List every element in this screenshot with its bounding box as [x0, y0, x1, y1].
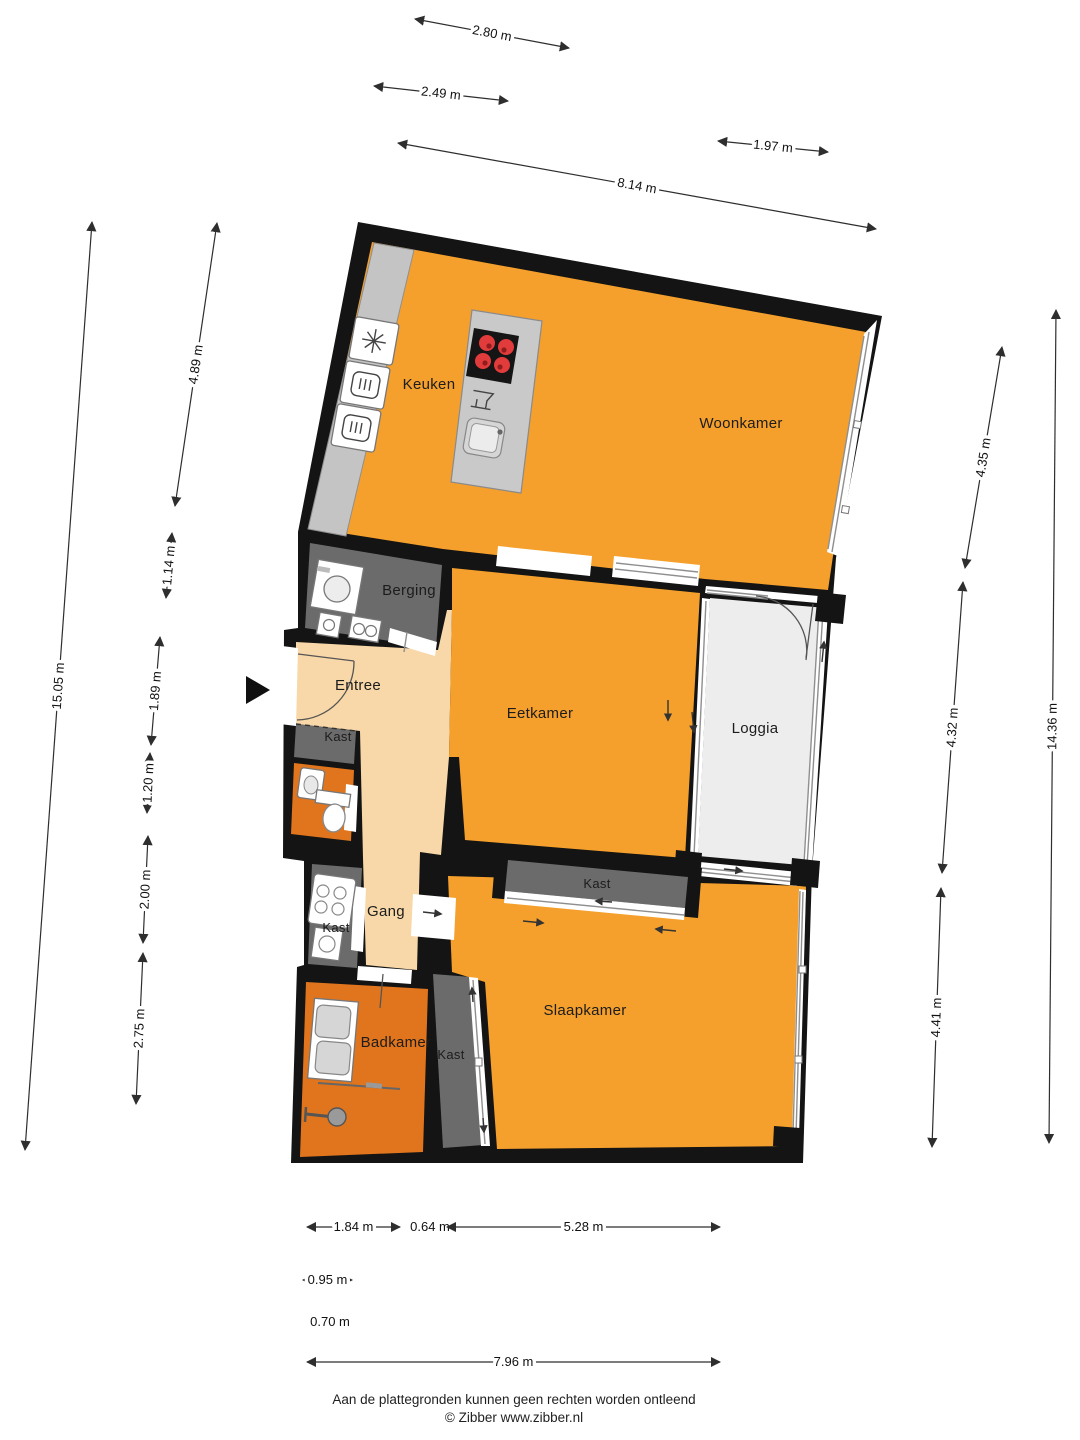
- gang-slaapkamer-opening: [411, 894, 456, 940]
- dimension: 2.80 m: [415, 19, 569, 48]
- dimension: 0.95 m: [303, 1272, 352, 1287]
- dimension: 15.05 m: [25, 222, 92, 1150]
- room-label-entree-3: Entree: [335, 677, 381, 694]
- dimension-label: 0.95 m: [308, 1272, 348, 1287]
- dimension: 1.97 m: [718, 137, 828, 156]
- footer-disclaimer: Aan de plattegronden kunnen geen rechten…: [332, 1392, 695, 1407]
- dimension: 2.75 m: [131, 953, 148, 1104]
- floor-plan-page: KeukenWoonkamerBergingEntreeEetkamerLogg…: [0, 0, 1080, 1440]
- room-label-keuken-0: Keuken: [403, 376, 456, 393]
- room-label-kast-12: Kast: [583, 876, 610, 891]
- dimension: 0.70 m: [310, 1314, 350, 1329]
- room-label-gang-7: Gang: [367, 903, 405, 920]
- dimension: 5.28 m: [447, 1219, 720, 1234]
- dimension: 4.89 m: [175, 223, 217, 506]
- dimension-label: 14.36 m: [1044, 703, 1059, 750]
- dimension-label: 2.49 m: [420, 83, 461, 102]
- room-label-eetkamer-4: Eetkamer: [507, 705, 574, 722]
- dimension-label: 0.70 m: [310, 1314, 350, 1329]
- dimension-label: 0.64 m: [410, 1219, 450, 1234]
- floor-plan-canvas: KeukenWoonkamerBergingEntreeEetkamerLogg…: [0, 0, 1080, 1440]
- dimension-label: 1.97 m: [753, 137, 794, 156]
- dimension-label: 1.20 m: [140, 763, 157, 803]
- room-fill-slaapkamer: [448, 876, 806, 1149]
- dimension: 8.14 m: [398, 143, 876, 229]
- room-label-loggia-5: Loggia: [732, 720, 779, 737]
- cooktop-icon: [466, 328, 519, 384]
- dimension: 4.35 m: [965, 347, 1002, 568]
- dimension-label: 2.75 m: [131, 1008, 148, 1048]
- dimension: 4.41 m: [928, 888, 944, 1147]
- dimension-label: 4.35 m: [972, 437, 993, 479]
- dimension-label: 15.05 m: [49, 662, 67, 710]
- dimension: 2.49 m: [374, 83, 508, 102]
- dimension: 2.00 m: [137, 836, 154, 943]
- room-label-slaapkamer-11: Slaapkamer: [543, 1002, 626, 1019]
- dimension-label: 1.84 m: [334, 1219, 374, 1234]
- washing-machine-icon: [310, 559, 364, 614]
- dimension: 1.20 m: [140, 753, 157, 813]
- dimension-label: 5.28 m: [564, 1219, 604, 1234]
- footer-credit: © Zibber www.zibber.nl: [445, 1410, 583, 1425]
- dimension-label: 7.96 m: [494, 1354, 534, 1369]
- room-label-berging-2: Berging: [382, 582, 436, 599]
- toilet-door-gap: [344, 784, 358, 832]
- dimension-label: 4.89 m: [185, 344, 206, 386]
- dimension: 14.36 m: [1044, 310, 1059, 1143]
- dimension-label: 8.14 m: [616, 175, 658, 197]
- entrance-arrow-icon: [246, 676, 270, 704]
- dimension: 1.84 m: [307, 1219, 400, 1234]
- dimension: 1.14 m: [159, 533, 178, 598]
- sink-icon: [462, 417, 506, 459]
- room-label-woonkamer-1: Woonkamer: [699, 415, 782, 432]
- dimension-label: 1.14 m: [159, 545, 178, 586]
- room-label-kast-6: Kast: [324, 729, 351, 744]
- dimension-label: 4.41 m: [928, 997, 944, 1037]
- dimension: 7.96 m: [307, 1354, 720, 1369]
- dimension: 4.32 m: [942, 582, 963, 873]
- oven-icon: [340, 360, 391, 409]
- room-label-kast-10: Kast: [437, 1047, 464, 1062]
- dimension-label: 2.00 m: [137, 869, 154, 909]
- dimension-label: 4.32 m: [943, 707, 961, 748]
- dimension: 1.89 m: [146, 637, 164, 745]
- extractor-hood-icon: [349, 316, 400, 365]
- dimension-label: 1.89 m: [146, 671, 164, 712]
- entree-door-gap: [280, 646, 298, 726]
- dimension: 0.64 m: [410, 1219, 450, 1234]
- room-label-badkamer-9: Badkamer: [361, 1034, 432, 1051]
- room-label-kast-8: Kast: [322, 920, 349, 935]
- oven-icon-2: [331, 403, 382, 452]
- room-fill-eetkamer: [449, 568, 700, 858]
- dimension-label: 2.80 m: [471, 22, 513, 44]
